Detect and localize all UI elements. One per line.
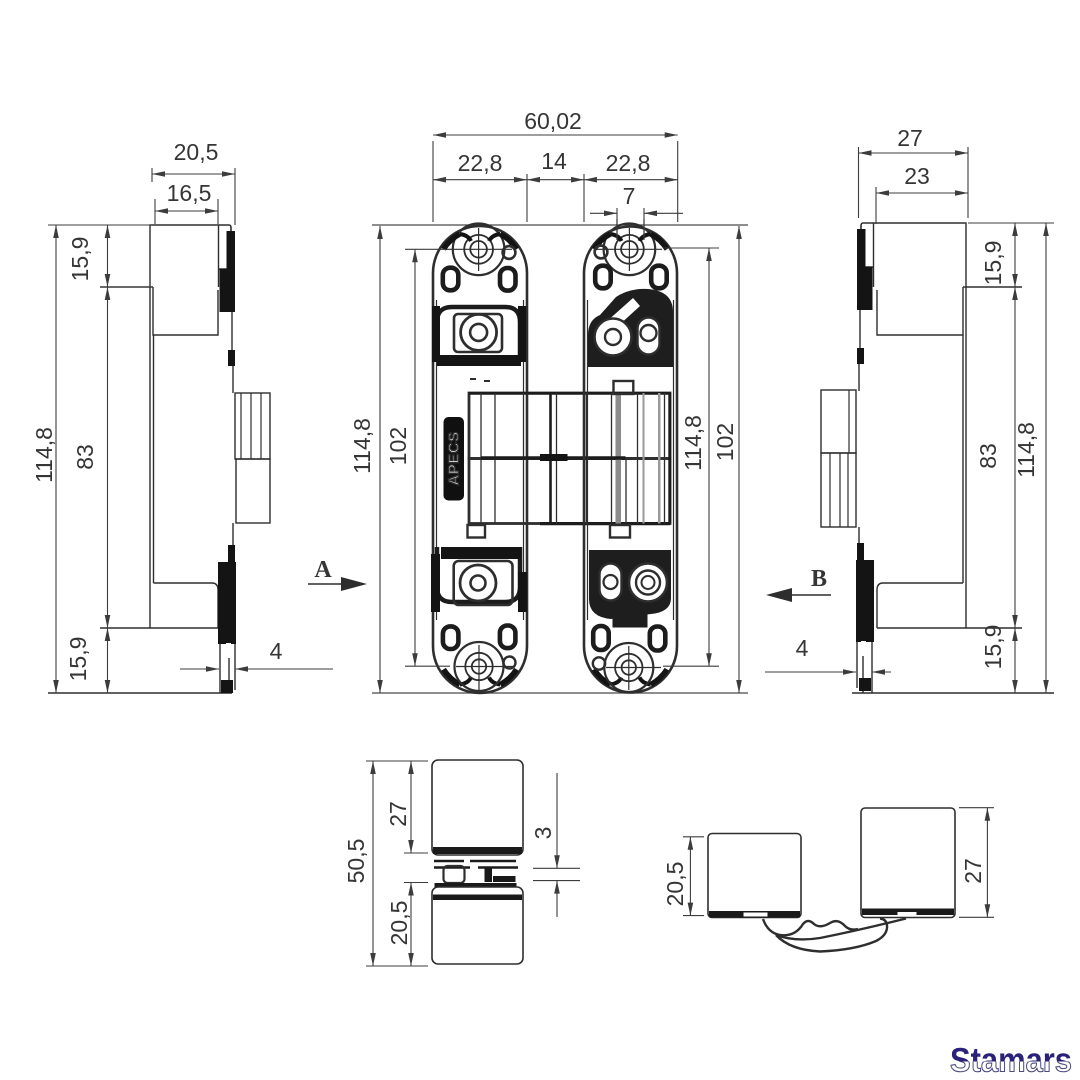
svg-text:APECS: APECS	[445, 431, 462, 485]
svg-text:22,8: 22,8	[606, 150, 651, 176]
svg-text:4: 4	[270, 638, 283, 664]
svg-text:83: 83	[975, 443, 1001, 469]
svg-text:B: B	[811, 566, 827, 592]
svg-text:102: 102	[385, 427, 411, 465]
svg-text:20,5: 20,5	[174, 139, 219, 165]
svg-text:22,8: 22,8	[458, 150, 503, 176]
svg-text:102: 102	[712, 423, 738, 461]
svg-text:114,8: 114,8	[680, 415, 706, 471]
svg-text:20,5: 20,5	[386, 901, 412, 946]
svg-text:60,02: 60,02	[524, 108, 582, 134]
svg-text:23: 23	[904, 163, 930, 189]
svg-text:15,9: 15,9	[65, 637, 91, 682]
svg-text:4: 4	[796, 635, 809, 661]
svg-text:114,8: 114,8	[31, 427, 57, 483]
svg-text:27: 27	[897, 125, 923, 151]
svg-text:15,9: 15,9	[980, 241, 1006, 286]
svg-text:50,5: 50,5	[343, 839, 369, 884]
svg-text:14: 14	[541, 148, 567, 174]
svg-text:83: 83	[72, 444, 98, 470]
svg-text:114,8: 114,8	[1013, 422, 1039, 478]
svg-text:16,5: 16,5	[167, 180, 212, 206]
svg-text:3: 3	[530, 827, 556, 840]
svg-text:7: 7	[623, 183, 636, 209]
svg-text:A: A	[314, 557, 332, 583]
svg-text:27: 27	[385, 801, 411, 827]
svg-text:15,9: 15,9	[980, 625, 1006, 670]
svg-text:20,5: 20,5	[662, 862, 688, 907]
svg-text:27: 27	[960, 858, 986, 884]
svg-text:114,8: 114,8	[349, 418, 375, 474]
svg-text:15,9: 15,9	[67, 237, 93, 282]
